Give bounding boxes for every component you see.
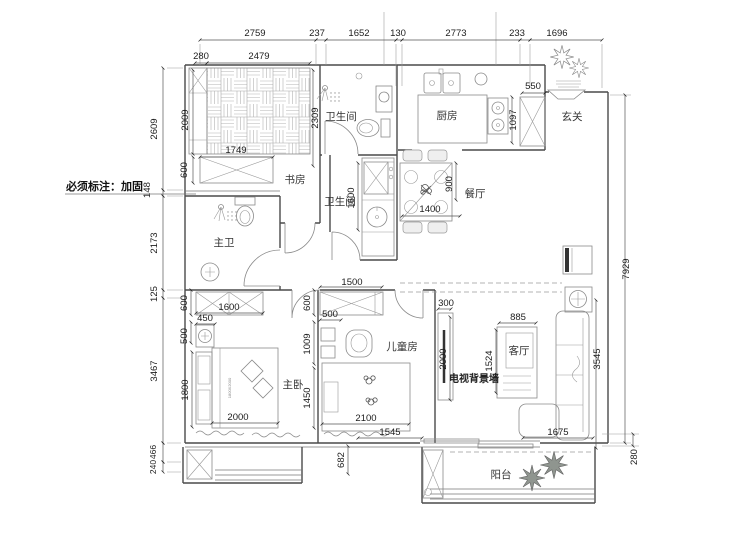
dim-left-148: 148 xyxy=(142,182,153,198)
room-balcony xyxy=(187,450,593,498)
label-study: 书房 xyxy=(285,173,306,186)
coffee-table xyxy=(497,327,537,398)
dim-master-500: 500 xyxy=(179,328,190,344)
toilet-icon xyxy=(237,206,254,226)
shower-spray-dots xyxy=(227,211,236,220)
dim-kids-1545: 1545 xyxy=(379,427,400,438)
counter-bowl xyxy=(475,73,487,85)
kids-room-door xyxy=(395,290,423,318)
cabinet-door xyxy=(565,248,569,272)
study-door xyxy=(285,223,315,253)
dim-280: 280 xyxy=(193,51,209,62)
pillow xyxy=(253,378,273,398)
room-bath-top xyxy=(317,73,392,137)
table-centerpiece xyxy=(421,185,432,196)
dim-left-2609: 2609 xyxy=(149,118,160,139)
dining-chair xyxy=(403,222,422,233)
dim-left-125: 125 xyxy=(149,286,160,302)
label-entry: 玄关 xyxy=(562,110,583,123)
label-bath-top: 卫生间 xyxy=(325,110,357,123)
dim-kids-600: 600 xyxy=(302,295,313,311)
dim-top-2773: 2773 xyxy=(445,28,466,39)
plant-icon xyxy=(540,451,567,478)
dining-chair xyxy=(428,222,447,233)
stove-icon xyxy=(488,98,508,134)
doormat xyxy=(556,81,581,87)
dim-living-885: 885 xyxy=(510,312,526,323)
dim-kids-1500: 1500 xyxy=(341,277,362,288)
sliding-door-panel xyxy=(478,444,533,448)
dim-top-237: 237 xyxy=(309,28,325,39)
shower-spray-dots xyxy=(330,92,339,101)
dim-master-2000: 2000 xyxy=(227,412,248,423)
entry-plant-icon xyxy=(550,45,573,68)
dim-top-233: 233 xyxy=(509,28,525,39)
floor-plan-canvas: 1800X2000 2759 237 1652 1 xyxy=(0,0,740,550)
dim-master-450: 450 xyxy=(197,313,213,324)
dim-kids-682: 682 xyxy=(336,452,347,468)
dim-2479: 2479 xyxy=(248,51,269,62)
label-master-bedroom: 主卧 xyxy=(283,378,304,391)
dining-chair xyxy=(428,150,447,161)
bed-size-label: 1800X2000 xyxy=(227,377,232,398)
toilet-tank xyxy=(235,197,255,205)
floor-plan-page: 1800X2000 2759 237 1652 1 xyxy=(0,0,740,550)
dim-kids-1450: 1450 xyxy=(302,387,313,408)
sink-icon xyxy=(443,73,460,93)
dim-study-600: 600 xyxy=(179,162,190,178)
dim-top-130: 130 xyxy=(390,28,406,39)
dim-kids-1009: 1009 xyxy=(302,333,313,354)
sofa-throw xyxy=(572,356,579,382)
toilet-tank xyxy=(381,119,390,137)
dim-living-1524: 1524 xyxy=(484,350,495,371)
dim-living-300: 300 xyxy=(438,298,454,309)
dim-left-2173: 2173 xyxy=(149,232,160,253)
dim-living-2000: 2000 xyxy=(438,348,449,369)
dim-study-2309: 2309 xyxy=(310,107,321,128)
label-kids-room: 儿童房 xyxy=(386,340,418,353)
label-living-room: 客厅 xyxy=(509,344,530,357)
dim-right-280: 280 xyxy=(629,449,640,465)
label-tv-wall: 电视背景墙 xyxy=(449,372,499,385)
room-labels: 书房 卫生间 厨房 玄关 主卫 卫生间 餐厅 主卧 儿童房 客厅 电视背景墙 阳… xyxy=(214,109,583,481)
wardrobe-side xyxy=(196,352,212,424)
pillow xyxy=(241,360,263,382)
entry-door xyxy=(548,90,585,99)
dim-master-1600: 1600 xyxy=(218,302,239,313)
toys xyxy=(364,376,377,405)
dim-kids-2100: 2100 xyxy=(355,413,376,424)
master-bath-door xyxy=(244,250,280,286)
dining-chair xyxy=(403,150,422,161)
dim-study-2009: 2009 xyxy=(180,109,191,130)
dim-left-3467: 3467 xyxy=(149,360,160,381)
label-bath-mid: 卫生间 xyxy=(324,195,356,208)
label-kitchen: 厨房 xyxy=(437,109,458,122)
label-master-bath: 主卫 xyxy=(214,237,235,249)
bath-top-door xyxy=(325,121,358,154)
pipe-shaft xyxy=(376,86,392,112)
dim-living-3545: 3545 xyxy=(592,348,603,369)
sink-icon xyxy=(424,73,441,93)
dim-right-7929: 7929 xyxy=(621,258,632,279)
desk-monitor xyxy=(321,328,335,341)
entry-plant-icon xyxy=(569,58,589,78)
dim-kitchen-1097: 1097 xyxy=(508,109,519,130)
dim-top-1696: 1696 xyxy=(546,28,567,39)
plant-icon xyxy=(519,465,545,491)
dim-left-466: 466 xyxy=(148,445,158,459)
dim-kids-500: 500 xyxy=(322,309,338,320)
dim-top-1652: 1652 xyxy=(348,28,369,39)
room-study xyxy=(189,68,310,183)
note-text: 必须标注：加固 xyxy=(65,179,143,193)
toilet-icon xyxy=(357,120,379,137)
dim-top-2759: 2759 xyxy=(244,28,265,39)
dim-dining-1400: 1400 xyxy=(419,204,440,215)
dim-master-1800: 1800 xyxy=(180,379,191,400)
dim-living-1675: 1675 xyxy=(547,427,568,438)
dim-550: 550 xyxy=(525,81,541,92)
room-entry xyxy=(550,45,588,87)
annotation-note: 必须标注：加固 xyxy=(65,179,196,194)
dim-study-1749: 1749 xyxy=(225,145,246,156)
bath-mid-door xyxy=(332,232,360,260)
label-dining: 餐厅 xyxy=(465,187,486,200)
dim-left-240: 240 xyxy=(148,460,158,474)
desk-item xyxy=(321,346,335,358)
room-bath-mid xyxy=(362,158,394,256)
dim-master-600: 600 xyxy=(179,295,190,311)
floor-drain-icon xyxy=(356,73,362,79)
label-balcony: 阳台 xyxy=(491,468,512,481)
tatami-area xyxy=(207,68,310,154)
dim-dining-900: 900 xyxy=(444,176,455,192)
